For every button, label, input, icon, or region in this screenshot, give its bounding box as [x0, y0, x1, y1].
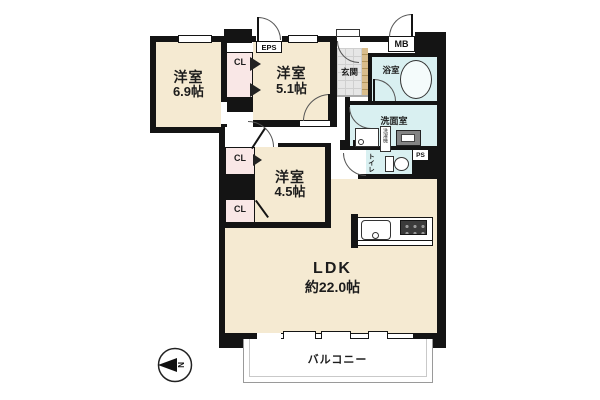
bath-label: 浴室: [374, 64, 408, 76]
ps-label: PS: [416, 152, 425, 159]
toilet-bowl: [394, 157, 409, 171]
toilet-door-arc: [343, 153, 366, 176]
closet-label: CL: [227, 57, 253, 67]
vanity-basin: [401, 134, 415, 142]
closet-label: CL: [225, 153, 255, 163]
washer-drain: [358, 139, 364, 145]
ps-shaft: PS: [412, 149, 429, 161]
wall: [415, 32, 446, 53]
sink-drain: [372, 232, 379, 239]
eps-door-arc: [258, 17, 281, 40]
toilet-tank: [385, 156, 394, 172]
wall: [224, 29, 252, 43]
mb-door-arc: [389, 14, 412, 37]
genkan-step-line: [337, 95, 368, 97]
wall: [330, 36, 337, 127]
room-size: 4.5帖: [274, 185, 305, 200]
wall: [225, 175, 255, 199]
wall: [219, 222, 331, 228]
wall: [437, 53, 446, 348]
vanity-unit: [396, 130, 421, 146]
wall: [340, 140, 346, 150]
washroom-label: 洗面室: [368, 114, 420, 127]
kitchen-counter-edge: [358, 240, 432, 241]
wall: [368, 53, 372, 102]
entrance-door-leaf: [336, 29, 360, 37]
room-name: 洋室: [174, 69, 204, 85]
eps-door-leaf: [257, 17, 259, 41]
room-name: 洋室: [277, 65, 307, 81]
room-size: 6.9帖: [173, 85, 204, 100]
ldk-label: LDK 約22.0帖: [245, 250, 420, 305]
room-name: LDK: [313, 260, 352, 278]
wall: [227, 98, 253, 112]
room-name: 洋室: [275, 169, 305, 185]
genkan-label: 玄関: [337, 66, 362, 78]
toilet-label: トイレ: [366, 151, 373, 174]
washer-space: 洗濯機: [380, 126, 391, 152]
compass-north-label: N: [176, 362, 185, 368]
stove: [400, 220, 427, 235]
mb-shaft: MB: [388, 36, 415, 52]
mb-door-leaf: [411, 14, 413, 37]
wall: [350, 101, 437, 105]
wall: [358, 174, 443, 179]
room-size: 約22.0帖: [305, 279, 360, 295]
wall: [412, 161, 437, 174]
mb-label: MB: [395, 39, 409, 49]
balcony-label: バルコニー: [290, 351, 385, 367]
wall: [325, 143, 331, 228]
closet-label: CL: [225, 204, 255, 214]
room-size: 5.1帖: [276, 82, 307, 97]
door-opening: [300, 121, 330, 126]
room-5-1-label: 洋室 5.1帖: [253, 42, 330, 120]
door-opening: [221, 102, 227, 124]
washer-label: 洗濯機: [382, 128, 389, 143]
compass: N: [152, 342, 198, 388]
floor-plan: EPS MB PS 洗濯機 バルコニー 洋室 6: [0, 0, 600, 400]
wall: [368, 53, 446, 57]
bath-door-leaf: [373, 79, 375, 102]
wall: [150, 127, 225, 133]
room-6-9-label: 洋室 6.9帖: [156, 42, 221, 127]
room-4-5-label: 洋室 4.5帖: [255, 147, 325, 222]
